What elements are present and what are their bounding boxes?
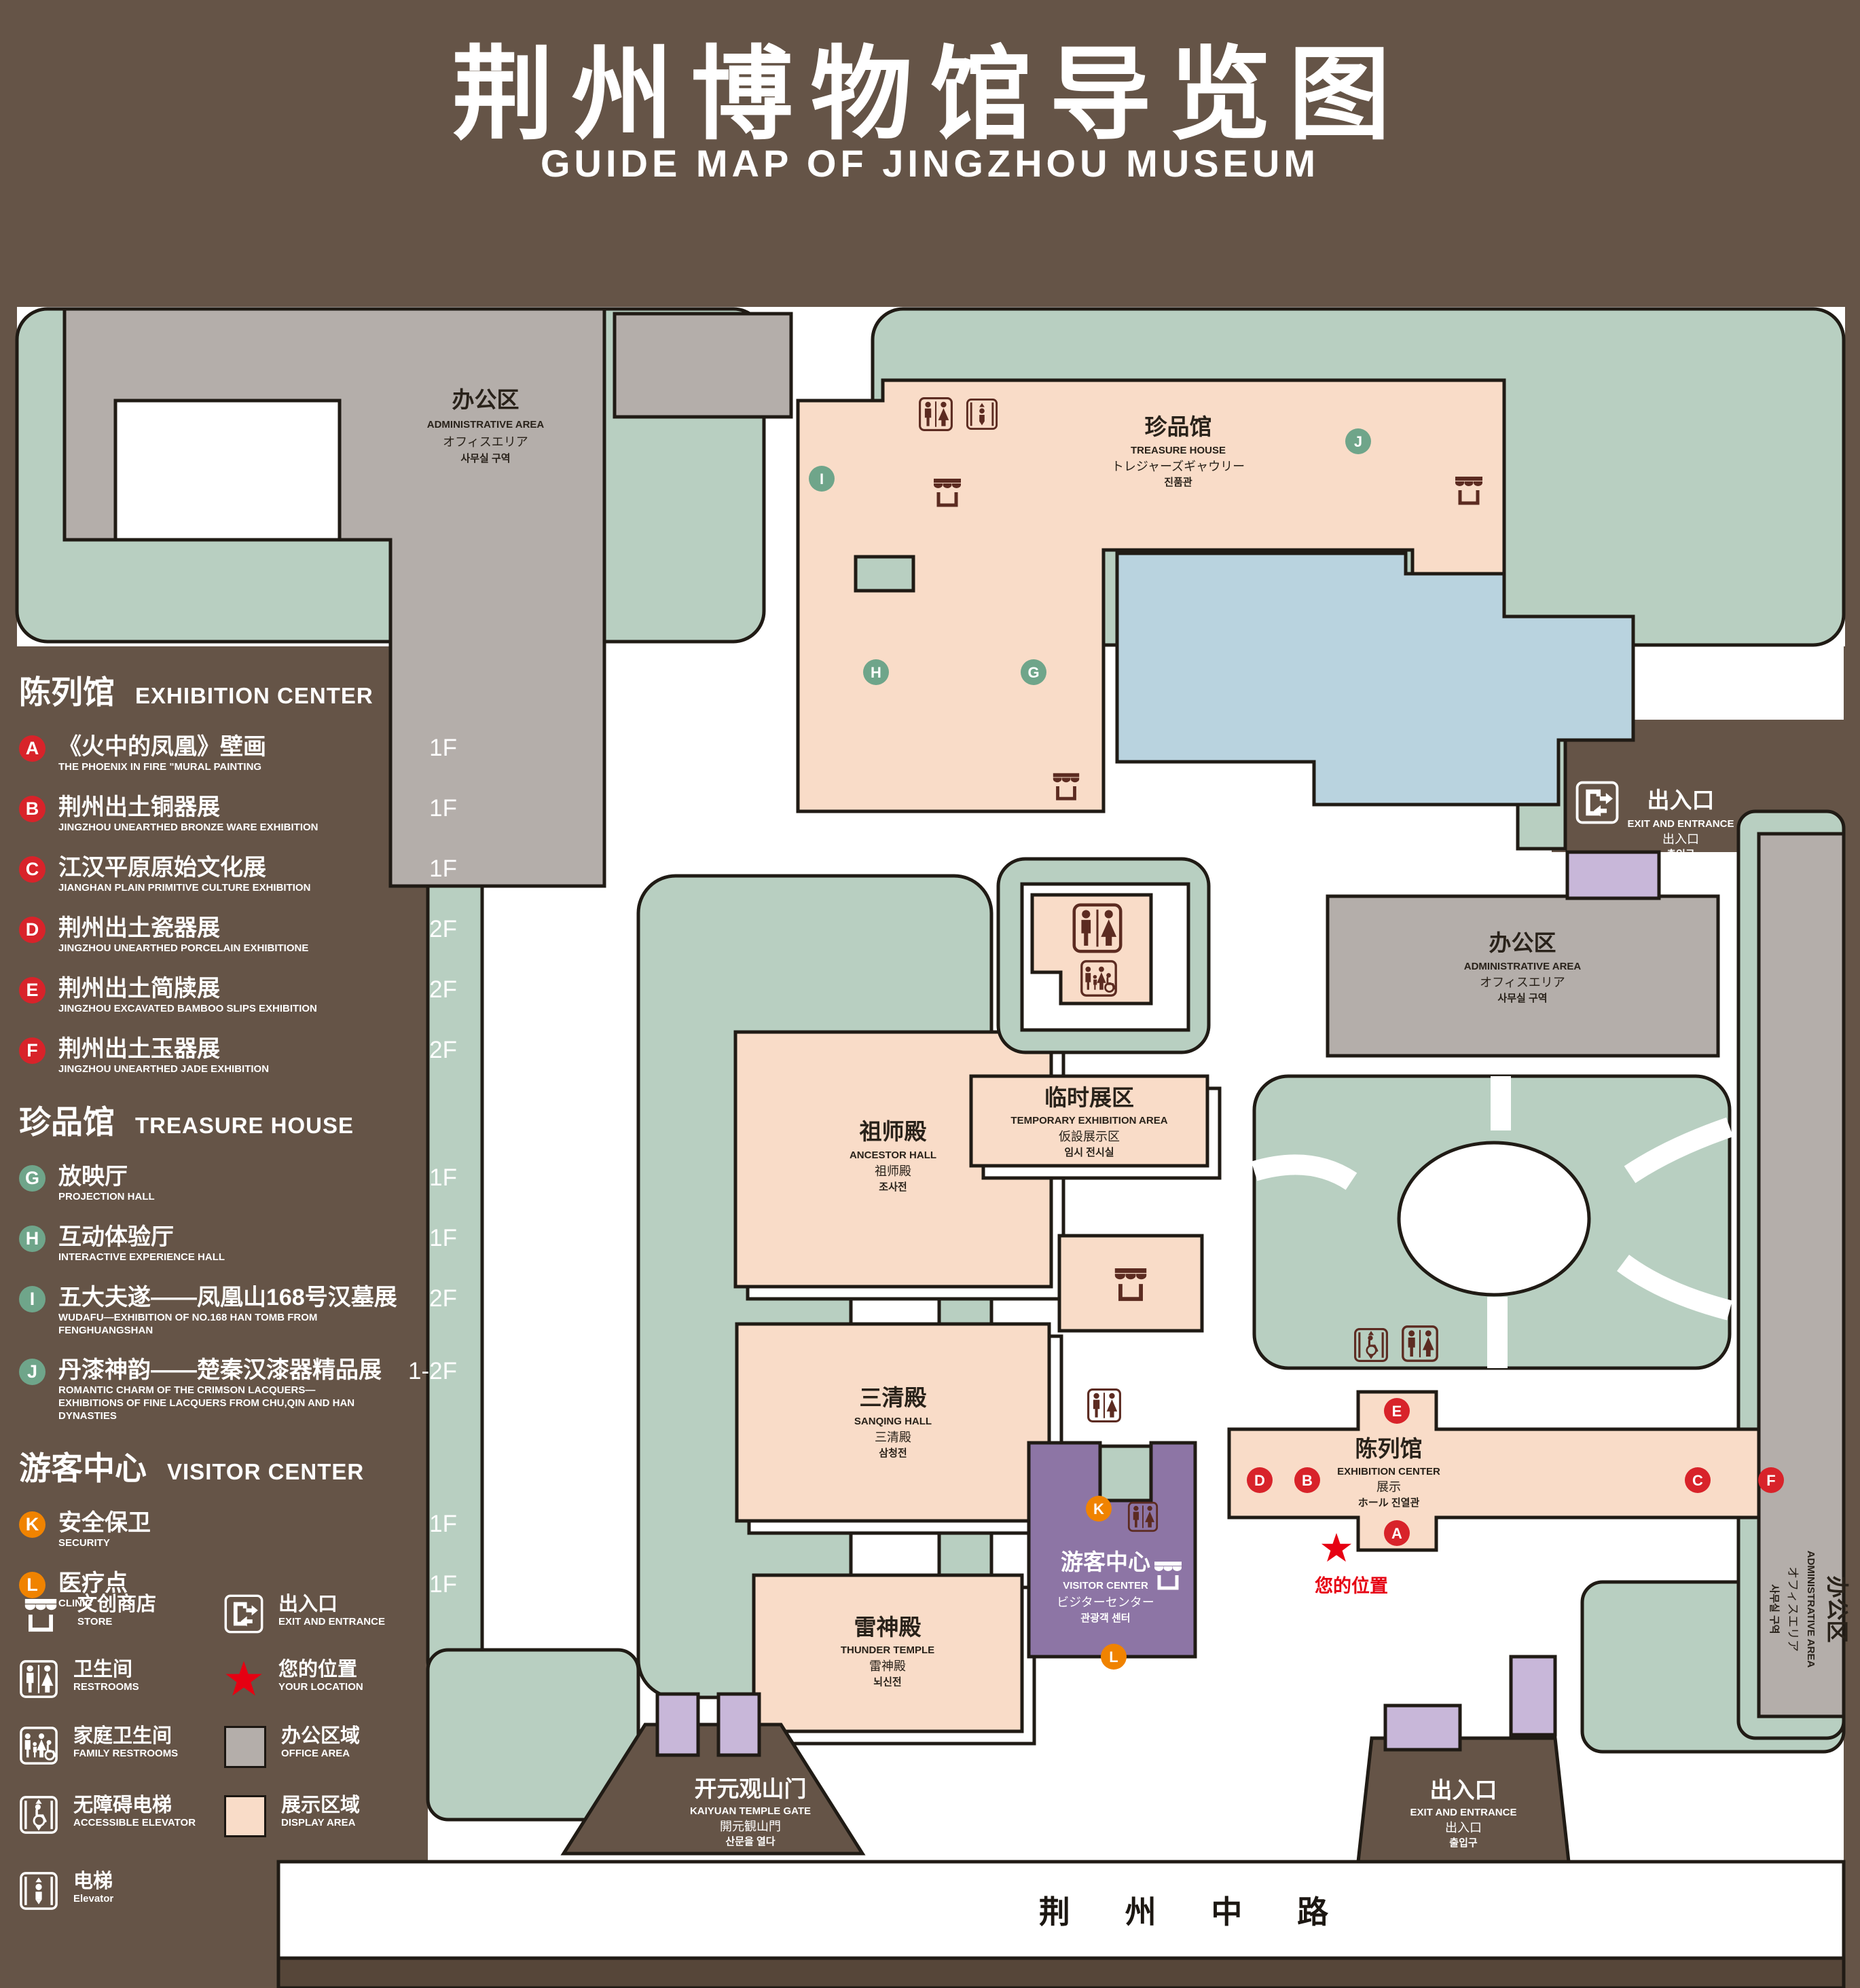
svg-text:出入口: 出入口 <box>1662 832 1699 846</box>
svg-text:祖师殿: 祖师殿 <box>875 1164 911 1178</box>
legend-section-treasure-house: 珍品馆 TREASURE HOUSE <box>19 1096 457 1143</box>
svg-text:展示: 展示 <box>1376 1480 1401 1494</box>
svg-text:임시 전시실: 임시 전시실 <box>1064 1147 1114 1158</box>
marker-b: B <box>1294 1467 1320 1493</box>
svg-text:E: E <box>1392 1403 1402 1420</box>
svg-text:出入口: 出入口 <box>1647 788 1715 813</box>
svg-text:オフィスエリア: オフィスエリア <box>1480 976 1565 989</box>
svg-text:三清殿: 三清殿 <box>875 1431 911 1444</box>
svg-text:THUNDER TEMPLE: THUNDER TEMPLE <box>841 1644 934 1656</box>
floor-e: 2F <box>429 976 457 1004</box>
svg-text:사무실 구역: 사무실 구역 <box>1497 993 1547 1004</box>
marker-c: C <box>1685 1467 1711 1493</box>
floor-j: 1-2F <box>408 1358 457 1385</box>
svg-text:F: F <box>1766 1472 1775 1489</box>
legend-item-i: I 五大夫遂——凤凰山168号汉墓展 WUDAFU—EXHIBITION OF … <box>19 1284 457 1337</box>
svg-text:办公区: 办公区 <box>1825 1576 1850 1643</box>
store-kiosk <box>1059 1236 1202 1331</box>
legend-item-b: B 荆州出土铜器展 JINGZHOU UNEARTHED BRONZE WARE… <box>19 794 457 834</box>
svg-text:雷神殿: 雷神殿 <box>854 1615 922 1640</box>
office-area-swatch <box>224 1726 266 1768</box>
svg-text:仮設展示区: 仮設展示区 <box>1059 1130 1120 1143</box>
svg-text:A: A <box>1391 1525 1402 1542</box>
svg-text:開元観山門: 開元観山門 <box>720 1820 781 1833</box>
svg-text:TEMPORARY EXHIBITION AREA: TEMPORARY EXHIBITION AREA <box>1010 1115 1167 1126</box>
svg-text:ANCESTOR HALL: ANCESTOR HALL <box>850 1149 936 1161</box>
legend-section-visitor-center: 游客中心 VISITOR CENTER <box>19 1442 457 1489</box>
svg-text:EXIT AND ENTRANCE: EXIT AND ENTRANCE <box>1628 818 1734 830</box>
entrance-building-northeast <box>1567 852 1659 898</box>
badge-b: B <box>19 796 45 822</box>
legend-symbol-accessible-elevator: 无障碍电梯 ACCESSIBLE ELEVATOR <box>19 1795 196 1835</box>
badge-g: G <box>19 1165 45 1192</box>
svg-text:I: I <box>820 471 824 487</box>
badge-a: A <box>19 735 45 762</box>
svg-text:出入口: 出入口 <box>1445 1821 1482 1835</box>
legend-item-h: H 互动体验厅 INTERACTIVE EXPERIENCE HALL 1F <box>19 1223 457 1264</box>
legend-item-j: J 丹漆神韵——楚秦汉漆器精品展 ROMANTIC CHARM OF THE C… <box>19 1357 457 1422</box>
svg-text:开元观山门: 开元观山门 <box>695 1776 807 1801</box>
green-notch <box>856 557 913 591</box>
floor-f: 2F <box>429 1037 457 1064</box>
floor-d: 2F <box>429 916 457 943</box>
exit-entrance-icon <box>224 1594 263 1634</box>
svg-text:KAIYUAN TEMPLE GATE: KAIYUAN TEMPLE GATE <box>690 1805 811 1817</box>
floor-h: 1F <box>429 1225 457 1252</box>
marker-d: D <box>1247 1467 1273 1493</box>
badge-d: D <box>19 917 45 943</box>
legend-item-f: F 荆州出土玉器展 JINGZHOU UNEARTHED JADE EXHIBI… <box>19 1035 457 1076</box>
legend-item-g: G 放映厅 PROJECTION HALL 1F <box>19 1163 457 1204</box>
marker-k: K <box>1086 1496 1112 1522</box>
svg-text:祖师殿: 祖师殿 <box>860 1119 927 1144</box>
badge-h: H <box>19 1226 45 1252</box>
store-icon <box>19 1594 62 1634</box>
badge-i: I <box>19 1286 45 1312</box>
svg-text:オフィスエリア: オフィスエリア <box>1786 1566 1800 1652</box>
marker-g: G <box>1021 659 1046 685</box>
svg-text:H: H <box>871 664 881 681</box>
svg-text:조사전: 조사전 <box>879 1181 907 1193</box>
floor-a: 1F <box>429 735 457 762</box>
svg-text:산문을 열다: 산문을 열다 <box>725 1836 775 1847</box>
floor-k: 1F <box>429 1511 457 1538</box>
floor-l: 1F <box>429 1571 457 1598</box>
svg-text:EXIT AND ENTRANCE: EXIT AND ENTRANCE <box>1410 1807 1517 1818</box>
svg-text:C: C <box>1692 1472 1703 1489</box>
legend-symbol-family-restrooms: 家庭卫生间 FAMILY RESTROOMS <box>19 1726 178 1765</box>
badge-f: F <box>19 1037 45 1064</box>
legend-symbol-your-location: 您的位置 YOUR LOCATION <box>224 1659 363 1699</box>
svg-text:出入口: 出入口 <box>1430 1778 1497 1803</box>
svg-text:临时展区: 临时展区 <box>1044 1085 1134 1110</box>
guide-map-poster: 荆州博物馆导览图 GUIDE MAP OF JINGZHOU MUSEUM <box>0 0 1860 1988</box>
svg-text:D: D <box>1254 1472 1265 1489</box>
marker-e: E <box>1384 1398 1410 1424</box>
legend-item-d: D 荆州出土瓷器展 JINGZHOU UNEARTHED PORCELAIN E… <box>19 915 457 955</box>
svg-text:VISITOR CENTER: VISITOR CENTER <box>1063 1580 1148 1591</box>
gate-door <box>657 1694 698 1755</box>
legend-symbol-exit: 出入口 EXIT AND ENTRANCE <box>224 1594 385 1634</box>
your-location-star <box>224 1659 263 1699</box>
svg-text:K: K <box>1093 1501 1104 1517</box>
legend-section-exhibition-center: 陈列馆 EXHIBITION CENTER <box>19 666 457 713</box>
marker-a: A <box>1384 1520 1410 1546</box>
svg-text:EXHIBITION CENTER: EXHIBITION CENTER <box>1337 1466 1440 1477</box>
svg-text:ビジターセンター: ビジターセンター <box>1057 1596 1154 1609</box>
central-restroom-block <box>998 859 1209 1052</box>
gate-door <box>718 1694 759 1755</box>
legend-symbol-display-area: 展示区域 DISPLAY AREA <box>224 1795 360 1837</box>
garden-pond <box>1399 1143 1589 1295</box>
svg-text:ADMINISTRATIVE AREA: ADMINISTRATIVE AREA <box>1464 961 1582 972</box>
svg-text:三清殿: 三清殿 <box>860 1385 927 1410</box>
badge-c: C <box>19 856 45 883</box>
exit-northeast-label: 出入口 EXIT AND ENTRANCE 出入口 출입구 <box>1628 788 1734 860</box>
svg-text:진품관: 진품관 <box>1164 477 1192 488</box>
svg-text:출입구: 출입구 <box>1666 849 1695 860</box>
floor-g: 1F <box>429 1164 457 1192</box>
display-area-swatch <box>224 1795 266 1837</box>
legend-symbol-office-area: 办公区域 OFFICE AREA <box>224 1726 360 1768</box>
marker-i: I <box>809 466 835 492</box>
legend-symbol-restrooms: 卫生间 RESTROOMS <box>19 1659 139 1699</box>
road-label: 荆 州 中 路 <box>1039 1894 1351 1930</box>
legend-symbol-elevator: 电梯 Elevator <box>19 1871 113 1911</box>
legend-item-c: C 江汉平原原始文化展 JIANGHAN PLAIN PRIMITIVE CUL… <box>19 854 457 895</box>
exit-entrance-icon <box>1578 783 1618 823</box>
svg-text:SANQING HALL: SANQING HALL <box>854 1416 932 1427</box>
svg-text:TREASURE HOUSE: TREASURE HOUSE <box>1131 445 1226 456</box>
marker-f: F <box>1758 1467 1784 1493</box>
svg-text:珍品馆: 珍品馆 <box>1145 414 1212 439</box>
marker-j: J <box>1345 428 1371 454</box>
accessible-elevator-icon <box>19 1795 58 1835</box>
svg-text:ADMINISTRATIVE AREA: ADMINISTRATIVE AREA <box>427 419 545 430</box>
svg-text:トレジャーズギャウリー: トレジャーズギャウリー <box>1112 460 1245 473</box>
marker-h: H <box>863 659 889 685</box>
svg-text:L: L <box>1109 1649 1118 1665</box>
floor-i: 2F <box>429 1285 457 1312</box>
entrance-building-south <box>1511 1657 1555 1735</box>
svg-text:办公区: 办公区 <box>452 387 519 412</box>
svg-text:ADMINISTRATIVE AREA: ADMINISTRATIVE AREA <box>1805 1551 1817 1668</box>
svg-text:オフィスエリア: オフィスエリア <box>443 435 528 449</box>
svg-text:사무실 구역: 사무실 구역 <box>1768 1584 1780 1634</box>
svg-text:陈列馆: 陈列馆 <box>1355 1436 1423 1461</box>
your-location-label: 您的位置 <box>1315 1575 1388 1596</box>
legend: 陈列馆 EXHIBITION CENTER A 《火中的凤凰》壁画 THE PH… <box>19 662 457 1630</box>
road-south-curb <box>278 1958 1844 1988</box>
accessible-elevator-icon <box>1355 1329 1387 1361</box>
entrance-building-south <box>1385 1706 1460 1750</box>
legend-item-k: K 安全保卫 SECURITY 1F <box>19 1509 457 1550</box>
floor-c: 1F <box>429 855 457 883</box>
svg-text:雷神殿: 雷神殿 <box>869 1659 906 1673</box>
badge-j: J <box>19 1359 45 1385</box>
svg-text:B: B <box>1302 1472 1313 1489</box>
legend-item-e: E 荆州出土简牍展 JINGZHOU EXCAVATED BAMBOO SLIP… <box>19 975 457 1016</box>
legend-item-a: A 《火中的凤凰》壁画 THE PHOENIX IN FIRE "MURAL P… <box>19 733 457 774</box>
garden <box>1254 1076 1730 1368</box>
svg-text:游客中心: 游客中心 <box>1061 1549 1150 1575</box>
svg-text:办公区: 办公区 <box>1489 930 1556 955</box>
svg-text:사무실 구역: 사무실 구역 <box>460 453 510 464</box>
legend-symbol-store: 文创商店 STORE <box>19 1594 156 1634</box>
svg-text:G: G <box>1027 664 1039 681</box>
svg-text:뇌신전: 뇌신전 <box>873 1676 901 1688</box>
svg-text:ホール 진열관: ホール 진열관 <box>1358 1497 1420 1509</box>
elevator-icon <box>19 1871 58 1911</box>
family-restrooms-icon <box>19 1726 58 1765</box>
svg-text:출입구: 출입구 <box>1449 1837 1478 1849</box>
svg-text:관광객 센터: 관광객 센터 <box>1080 1612 1130 1624</box>
badge-k: K <box>19 1511 45 1538</box>
marker-l: L <box>1101 1644 1127 1670</box>
svg-text:J: J <box>1354 433 1362 450</box>
svg-text:삼청전: 삼청전 <box>879 1448 907 1459</box>
restrooms-icon <box>19 1659 58 1699</box>
floor-b: 1F <box>429 795 457 822</box>
badge-e: E <box>19 977 45 1004</box>
